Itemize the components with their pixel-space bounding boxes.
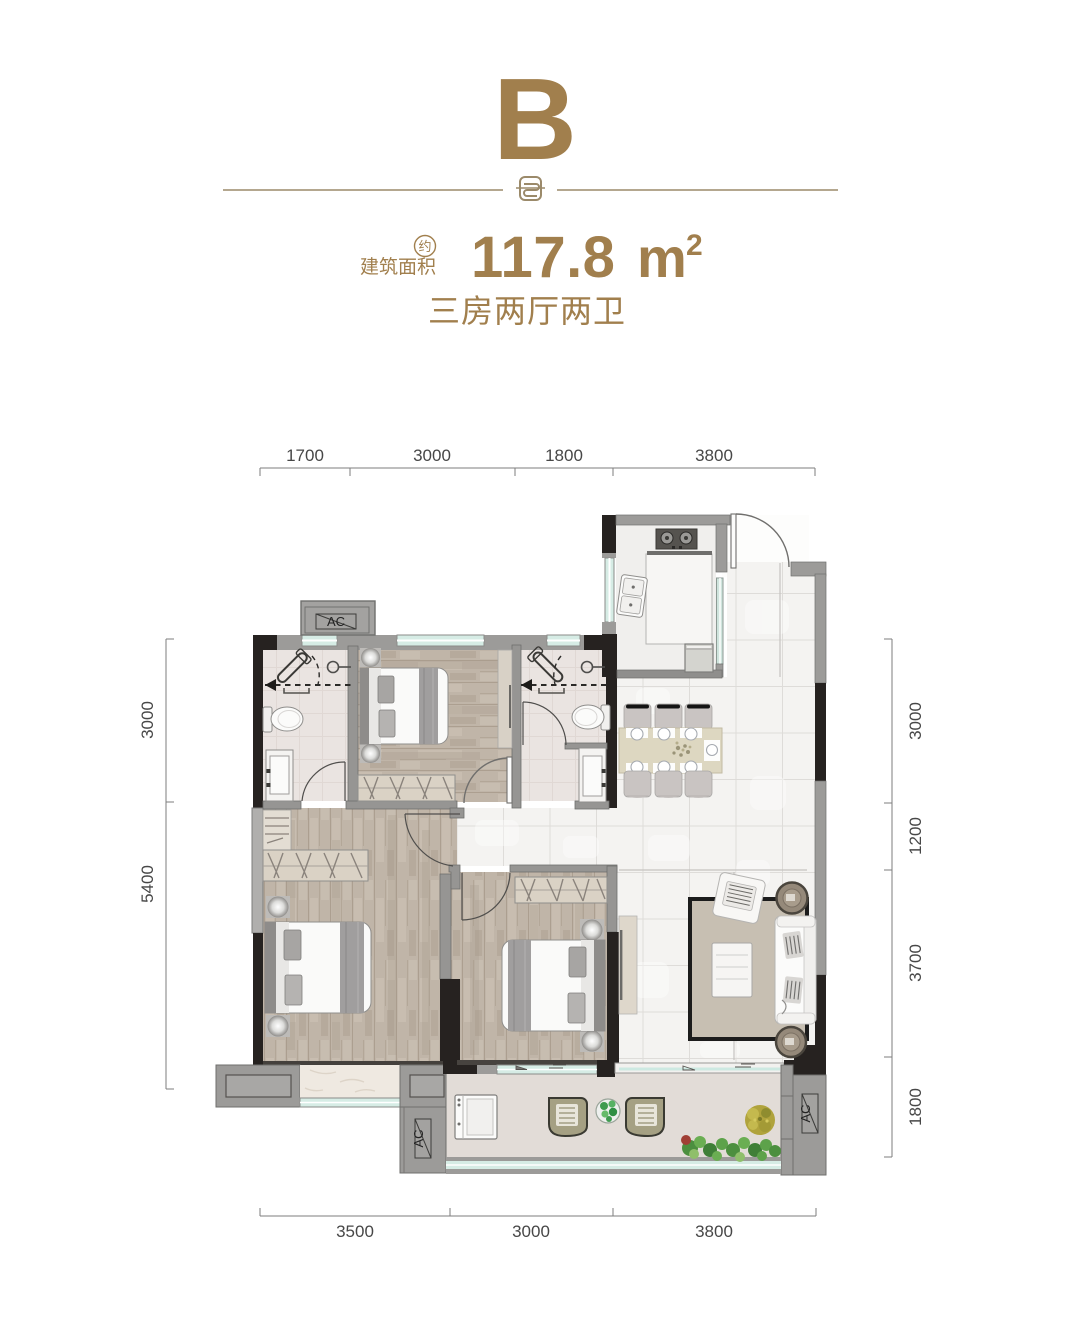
svg-text:三房两厅两卫: 三房两厅两卫 <box>428 293 626 329</box>
svg-text:3800: 3800 <box>695 446 733 465</box>
svg-text:3800: 3800 <box>695 1222 733 1241</box>
svg-text:m: m <box>637 226 687 289</box>
svg-text:B: B <box>493 54 577 184</box>
svg-text:3000: 3000 <box>413 446 451 465</box>
svg-text:AC: AC <box>327 614 345 629</box>
svg-text:1200: 1200 <box>906 817 925 855</box>
svg-text:AC: AC <box>411 1129 426 1147</box>
svg-text:5400: 5400 <box>138 865 157 903</box>
svg-text:3000: 3000 <box>138 701 157 739</box>
svg-text:1800: 1800 <box>545 446 583 465</box>
svg-text:约: 约 <box>418 239 431 254</box>
svg-text:2: 2 <box>686 229 703 262</box>
svg-text:3000: 3000 <box>512 1222 550 1241</box>
svg-text:3000: 3000 <box>906 702 925 740</box>
svg-text:1700: 1700 <box>286 446 324 465</box>
svg-text:117.8: 117.8 <box>471 225 615 290</box>
svg-text:建筑面积: 建筑面积 <box>360 256 436 278</box>
svg-text:3500: 3500 <box>336 1222 374 1241</box>
svg-text:3700: 3700 <box>906 944 925 982</box>
svg-text:AC: AC <box>798 1104 813 1122</box>
svg-text:1800: 1800 <box>906 1088 925 1126</box>
